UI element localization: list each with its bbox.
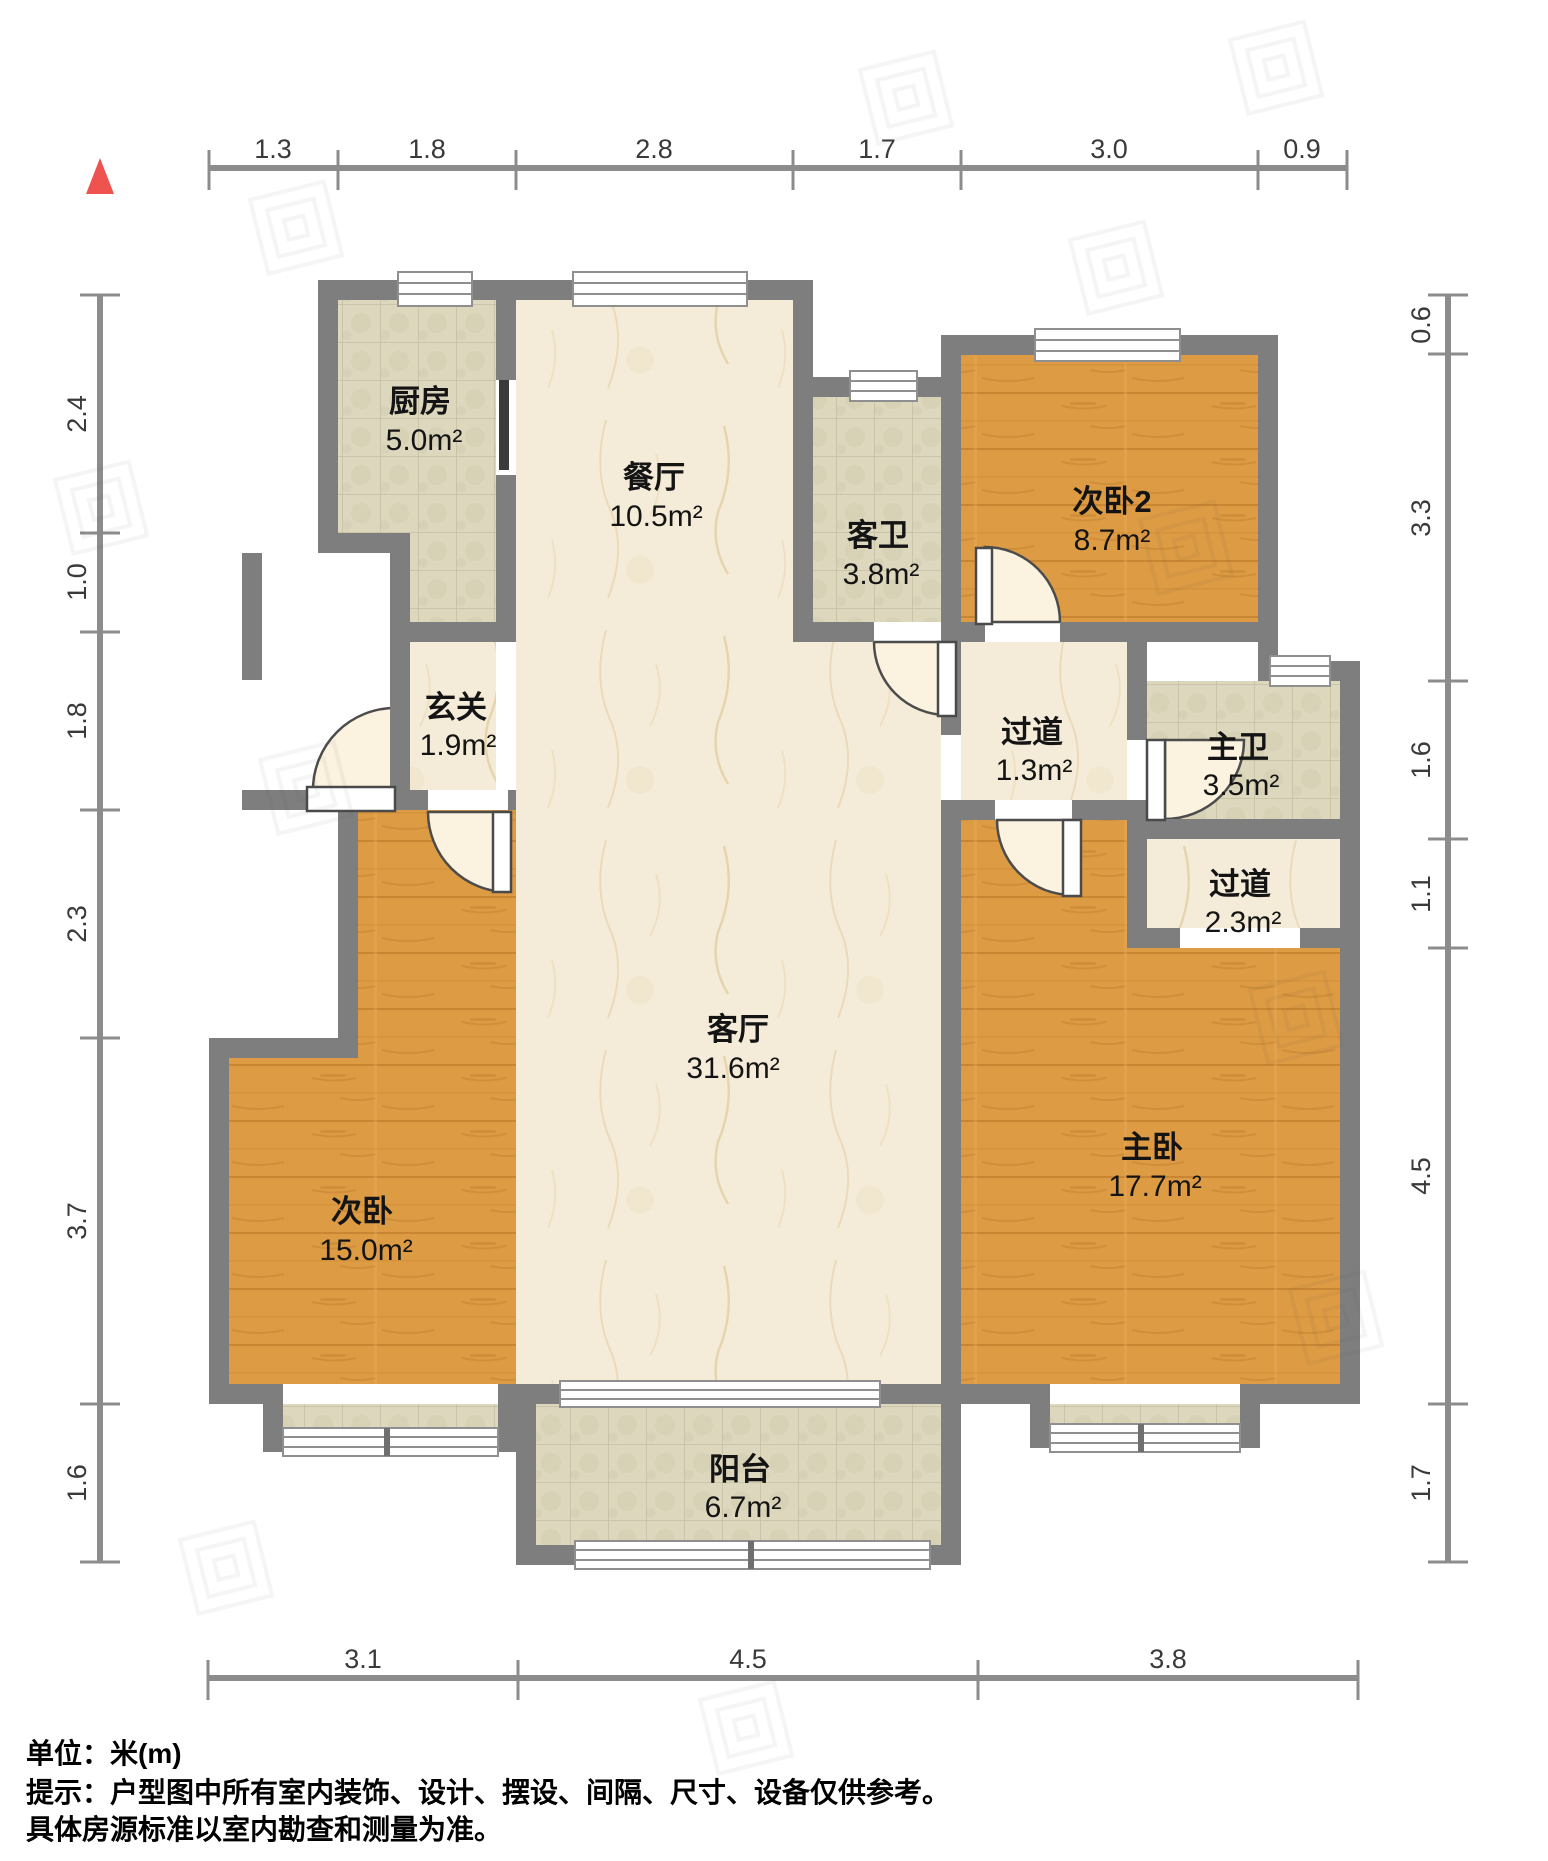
kitchen-area: 5.0m² <box>386 424 463 457</box>
kitchen-floor <box>338 300 496 622</box>
guest-bath-area: 3.8m² <box>843 558 920 591</box>
dim-label: 0.9 <box>1283 134 1321 164</box>
balcony-slider-window <box>560 1381 880 1407</box>
hint-note-2: 具体房源标准以室内勘查和测量为准。 <box>26 1808 502 1848</box>
dining-label: 餐厅 <box>623 460 685 495</box>
living-right-strip-floor <box>793 642 941 1384</box>
dim-label: 3.7 <box>62 1202 92 1240</box>
dimension-bottom: 3.1 4.5 3.8 <box>208 1644 1358 1700</box>
bedroom1-baywindow-sill <box>283 1404 498 1428</box>
living-label: 客厅 <box>707 1012 769 1047</box>
dim-label: 1.8 <box>408 134 446 164</box>
bedroom2-area: 8.7m² <box>1074 524 1151 557</box>
bedroom1-door-leaf <box>493 812 511 892</box>
master-bath-window <box>1270 656 1330 686</box>
dim-label: 4.5 <box>1406 1157 1436 1195</box>
dining-area: 10.5m² <box>609 500 702 533</box>
guest-bath-window <box>850 371 917 401</box>
dim-label: 1.6 <box>1406 741 1436 779</box>
dining-window <box>573 272 747 306</box>
dim-label: 1.0 <box>62 563 92 601</box>
bedroom2-door-leaf <box>976 548 992 624</box>
dim-label: 2.3 <box>62 905 92 943</box>
balcony-area: 6.7m² <box>705 1491 782 1524</box>
guest-bath-door-leaf <box>938 642 956 716</box>
hallway2-area: 2.3m² <box>1205 906 1282 939</box>
dimension-right: 0.6 3.3 1.6 1.1 4.5 1.7 <box>1406 295 1468 1562</box>
master-bath-door-leaf <box>1147 740 1165 820</box>
dim-label: 1.8 <box>62 702 92 740</box>
hint-note-1: 提示：户型图中所有室内装饰、设计、摆设、间隔、尺寸、设备仅供参考。 <box>26 1771 950 1811</box>
dim-label: 1.3 <box>254 134 292 164</box>
dim-label: 1.6 <box>62 1464 92 1502</box>
hallway1-area: 1.3m² <box>996 754 1073 787</box>
master-bath-label: 主卫 <box>1207 730 1269 765</box>
dim-label: 1.7 <box>1406 1464 1436 1502</box>
dim-label: 3.0 <box>1090 134 1128 164</box>
master-bedroom-door-leaf <box>1063 820 1081 896</box>
dim-label: 1.1 <box>1406 875 1436 913</box>
balcony-bottom-window <box>575 1541 930 1569</box>
floorplan-page: 厨房 5.0m² 餐厅 10.5m² 客卫 3.8m² 次卧2 8.7m² 玄关… <box>0 0 1548 1861</box>
bedroom1-label: 次卧 <box>331 1194 393 1229</box>
dim-label: 2.4 <box>62 395 92 433</box>
dim-label: 3.3 <box>1406 499 1436 537</box>
bedroom1-area: 15.0m² <box>319 1234 412 1267</box>
master-bedroom-area: 17.7m² <box>1108 1170 1201 1203</box>
dim-label: 3.1 <box>344 1644 382 1674</box>
guest-bath-label: 客卫 <box>847 518 909 553</box>
balcony-label: 阳台 <box>709 1452 771 1487</box>
bedroom1-floor <box>229 810 516 1384</box>
unit-note: 单位：米(m) <box>26 1732 182 1772</box>
living-area: 31.6m² <box>686 1052 779 1085</box>
bedroom1-bay-window <box>283 1428 498 1456</box>
north-arrow-icon <box>86 158 114 194</box>
dim-label: 2.8 <box>635 134 673 164</box>
entry-door-swing <box>313 708 395 790</box>
bedroom2-label: 次卧2 <box>1072 484 1151 519</box>
floorplan-svg: 厨房 5.0m² 餐厅 10.5m² 客卫 3.8m² 次卧2 8.7m² 玄关… <box>0 0 1548 1861</box>
master-bay-window <box>1050 1424 1240 1452</box>
floors-layer <box>229 300 1340 1545</box>
dim-label: 4.5 <box>729 1644 767 1674</box>
kitchen-slider-leaf <box>499 380 509 470</box>
master-baywindow-sill <box>1050 1404 1240 1424</box>
hallway1-label: 过道 <box>1001 715 1063 750</box>
kitchen-label: 厨房 <box>389 384 451 419</box>
master-bedroom-label: 主卧 <box>1121 1130 1183 1165</box>
master-bath-area: 3.5m² <box>1203 769 1280 802</box>
dimension-top: 1.3 1.8 2.8 1.7 3.0 0.9 <box>209 134 1347 190</box>
foyer-label: 玄关 <box>425 690 487 725</box>
dim-label: 3.8 <box>1149 1644 1187 1674</box>
hallway2-label: 过道 <box>1209 867 1271 902</box>
foyer-area: 1.9m² <box>420 729 497 762</box>
bedroom2-window <box>1035 329 1180 361</box>
dim-label: 0.6 <box>1406 306 1436 344</box>
kitchen-window <box>398 272 472 306</box>
